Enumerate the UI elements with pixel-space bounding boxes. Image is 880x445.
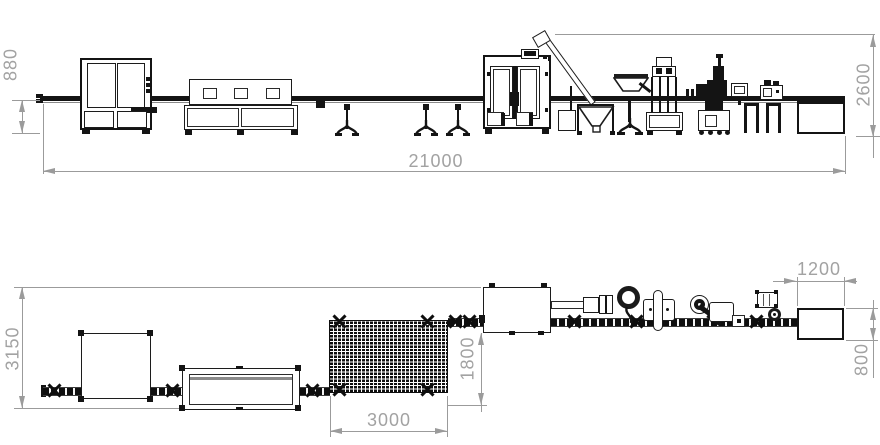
corner-marker xyxy=(147,396,153,402)
dim-3150-ext-bottom xyxy=(14,408,182,409)
filler-column xyxy=(651,77,653,112)
dim-800-arrow-up xyxy=(870,308,876,320)
pad-center-dot xyxy=(666,308,669,311)
dim-880-ext-top xyxy=(12,100,40,101)
machine-foot xyxy=(291,130,298,135)
dim-1800-arrow-up xyxy=(478,333,484,345)
sensor-dot xyxy=(737,319,741,323)
hopper-cabinet xyxy=(558,110,576,131)
cartoner-plan xyxy=(483,287,551,333)
cartoner-infeed-plan xyxy=(479,315,485,323)
labeller-detail xyxy=(776,90,779,93)
filler-head-detail xyxy=(656,68,662,74)
leg-tripod-foot xyxy=(335,120,359,136)
dim-3000-line xyxy=(330,431,448,432)
dim-21000-arrow-left xyxy=(43,168,55,174)
corner-marker xyxy=(295,365,301,371)
conveyor-motor xyxy=(316,101,325,108)
leg-cross-marker xyxy=(568,315,581,328)
leg-cross-marker xyxy=(48,384,61,397)
capper-head xyxy=(713,66,724,80)
filler-column xyxy=(675,77,677,112)
capper-capsule-plan xyxy=(653,290,663,331)
hopper-funnel xyxy=(577,106,615,134)
dim-2600-ext-bottom xyxy=(856,136,880,137)
cartoner-top-fitting xyxy=(548,55,551,61)
dim-800-arrow-down xyxy=(870,328,876,340)
machine-foot xyxy=(485,129,492,134)
filler-column xyxy=(667,77,669,112)
capper-trolley-panel xyxy=(705,115,717,127)
dim-2600-arrow-up xyxy=(870,35,876,47)
machine-foot xyxy=(577,131,582,135)
case-packer-control xyxy=(146,83,150,87)
conveyor-frame-line xyxy=(43,102,845,103)
dim-3150-arrow-up xyxy=(19,287,25,299)
labeller-panel xyxy=(763,88,772,97)
tunnel-window xyxy=(266,88,280,99)
capper-starwheel xyxy=(705,96,723,110)
conveyor-leg-post xyxy=(778,103,781,133)
dim-2600-ext-top xyxy=(555,34,875,35)
dim-3150-arrow-down xyxy=(19,396,25,408)
elevator-hopper-divider xyxy=(605,296,607,313)
filler-column xyxy=(659,77,661,112)
leg-cross-marker xyxy=(421,383,434,396)
conveyor-leg-post xyxy=(766,103,769,133)
capper-turret xyxy=(707,80,727,96)
dim-880-ext-bottom xyxy=(12,133,40,134)
machine-foot xyxy=(542,129,549,134)
dim-800-label: 800 xyxy=(854,340,871,380)
machine-foot xyxy=(610,131,615,135)
dim-3000-arrow-left xyxy=(330,428,342,434)
machine-foot xyxy=(647,131,653,135)
dim-1800-label: 1800 xyxy=(460,335,477,383)
cap-sorter-stand xyxy=(617,118,643,135)
corner-dot xyxy=(755,304,759,308)
conveyor-leg-post xyxy=(756,103,759,133)
corner-dot xyxy=(755,290,759,294)
bottle xyxy=(686,89,689,96)
leg-tripod-foot xyxy=(414,120,438,136)
panel-latch xyxy=(501,113,505,126)
trolley-wheel xyxy=(699,130,704,135)
dim-1200-arrow-right xyxy=(844,278,856,284)
elevator-drive-plan xyxy=(583,297,599,313)
edge-fitting xyxy=(236,407,243,410)
tunnel-base-panel xyxy=(187,108,239,127)
door-hinge xyxy=(545,72,548,76)
reel-center xyxy=(773,313,776,316)
dim-3150-ext-top xyxy=(14,287,481,288)
edge-fitting xyxy=(538,331,544,335)
cartoner-top-fitting xyxy=(543,55,547,59)
machine-foot xyxy=(142,129,150,134)
edge-fitting xyxy=(541,283,547,287)
dim-21000-ext-left xyxy=(43,104,44,174)
dim-21000-line xyxy=(43,171,845,172)
tunnel-window xyxy=(203,88,217,99)
machine-foot xyxy=(237,130,244,135)
case-packer-door-left xyxy=(87,63,116,108)
corner-marker xyxy=(78,330,84,336)
corner-dot xyxy=(774,290,778,294)
door-hinge xyxy=(487,72,490,76)
dim-2600-label: 2600 xyxy=(856,61,873,109)
panel-latch xyxy=(529,113,533,126)
dim-1800-arrow-down xyxy=(478,393,484,405)
labeller-body-plan xyxy=(709,302,734,322)
monitor-screen xyxy=(734,86,745,94)
leg-cross-marker xyxy=(421,315,434,328)
leg-tripod-foot xyxy=(446,120,470,136)
trolley-wheel xyxy=(708,130,713,135)
conveyor-belt-elevation xyxy=(40,96,845,101)
tunnel-base-panel xyxy=(241,108,294,127)
cartoner-door-handle xyxy=(510,92,519,106)
dim-880-arrow-up xyxy=(19,100,25,112)
cap-feed-tube-plan xyxy=(623,306,635,324)
case-packer-control xyxy=(146,89,150,93)
leg-cross-marker xyxy=(306,384,319,397)
leg-cross-marker xyxy=(463,315,476,328)
filler-head-detail xyxy=(666,68,672,74)
dim-1200-label: 1200 xyxy=(789,261,849,278)
corner-marker xyxy=(179,405,185,411)
door-hinge xyxy=(545,108,548,112)
conveyor-leg-post xyxy=(744,103,747,133)
tunnel-plan-rail xyxy=(190,377,292,380)
checkweigher-belt-line xyxy=(769,294,770,306)
machine-foot xyxy=(185,130,192,135)
case-packer-control xyxy=(146,77,150,81)
outfeed-table-plan xyxy=(797,308,844,340)
outfeed-table xyxy=(797,99,845,134)
drawing-canvas: 880 xyxy=(0,0,880,445)
trolley-wheel xyxy=(725,130,730,135)
dim-880-label: 880 xyxy=(3,43,20,87)
elevator-boom-plan xyxy=(551,301,584,309)
elevation-view: 880 xyxy=(0,0,880,220)
checkweigher-belt-line xyxy=(763,294,764,306)
edge-fitting xyxy=(236,366,243,369)
pad-center-dot xyxy=(649,308,652,311)
dim-21000-ext-right xyxy=(845,136,846,174)
cartoner-door-inner xyxy=(493,69,510,116)
dim-21000-arrow-right xyxy=(833,168,845,174)
monitor-post xyxy=(738,97,741,105)
cartoner-door-inner xyxy=(520,69,537,116)
conveyor-end-drive xyxy=(36,94,43,98)
dim-2600-arrow-down xyxy=(870,125,876,137)
machine-foot xyxy=(676,131,682,135)
corner-marker xyxy=(295,405,301,411)
tunnel-window xyxy=(234,88,248,99)
filler-base-panel xyxy=(649,115,680,128)
corner-marker xyxy=(179,365,185,371)
edge-fitting xyxy=(489,283,495,287)
leg-cross-marker xyxy=(333,383,346,396)
dim-3000-label: 3000 xyxy=(357,412,421,429)
dim-3150-label: 3150 xyxy=(5,325,22,373)
case-packer-plan xyxy=(81,333,151,399)
dim-21000-label: 21000 xyxy=(400,153,472,170)
leg-cross-marker xyxy=(449,315,462,328)
bottle xyxy=(691,89,694,96)
dim-880-arrow-down xyxy=(19,121,25,133)
case-packer-panel xyxy=(84,111,114,128)
corner-marker xyxy=(78,396,84,402)
leg-cross-marker xyxy=(750,315,763,328)
cartoner-control-screen xyxy=(524,51,536,56)
case-packer-door-right xyxy=(117,63,145,108)
machine-foot xyxy=(82,129,90,134)
leg-cross-marker xyxy=(166,384,179,397)
trolley-wheel xyxy=(717,130,722,135)
leg-cross-marker xyxy=(333,315,346,328)
corner-marker xyxy=(147,330,153,336)
case-packer-panel xyxy=(117,111,147,128)
dim-1200-arrow-left xyxy=(784,278,796,284)
dim-3000-arrow-right xyxy=(435,428,447,434)
edge-fitting xyxy=(509,331,515,335)
